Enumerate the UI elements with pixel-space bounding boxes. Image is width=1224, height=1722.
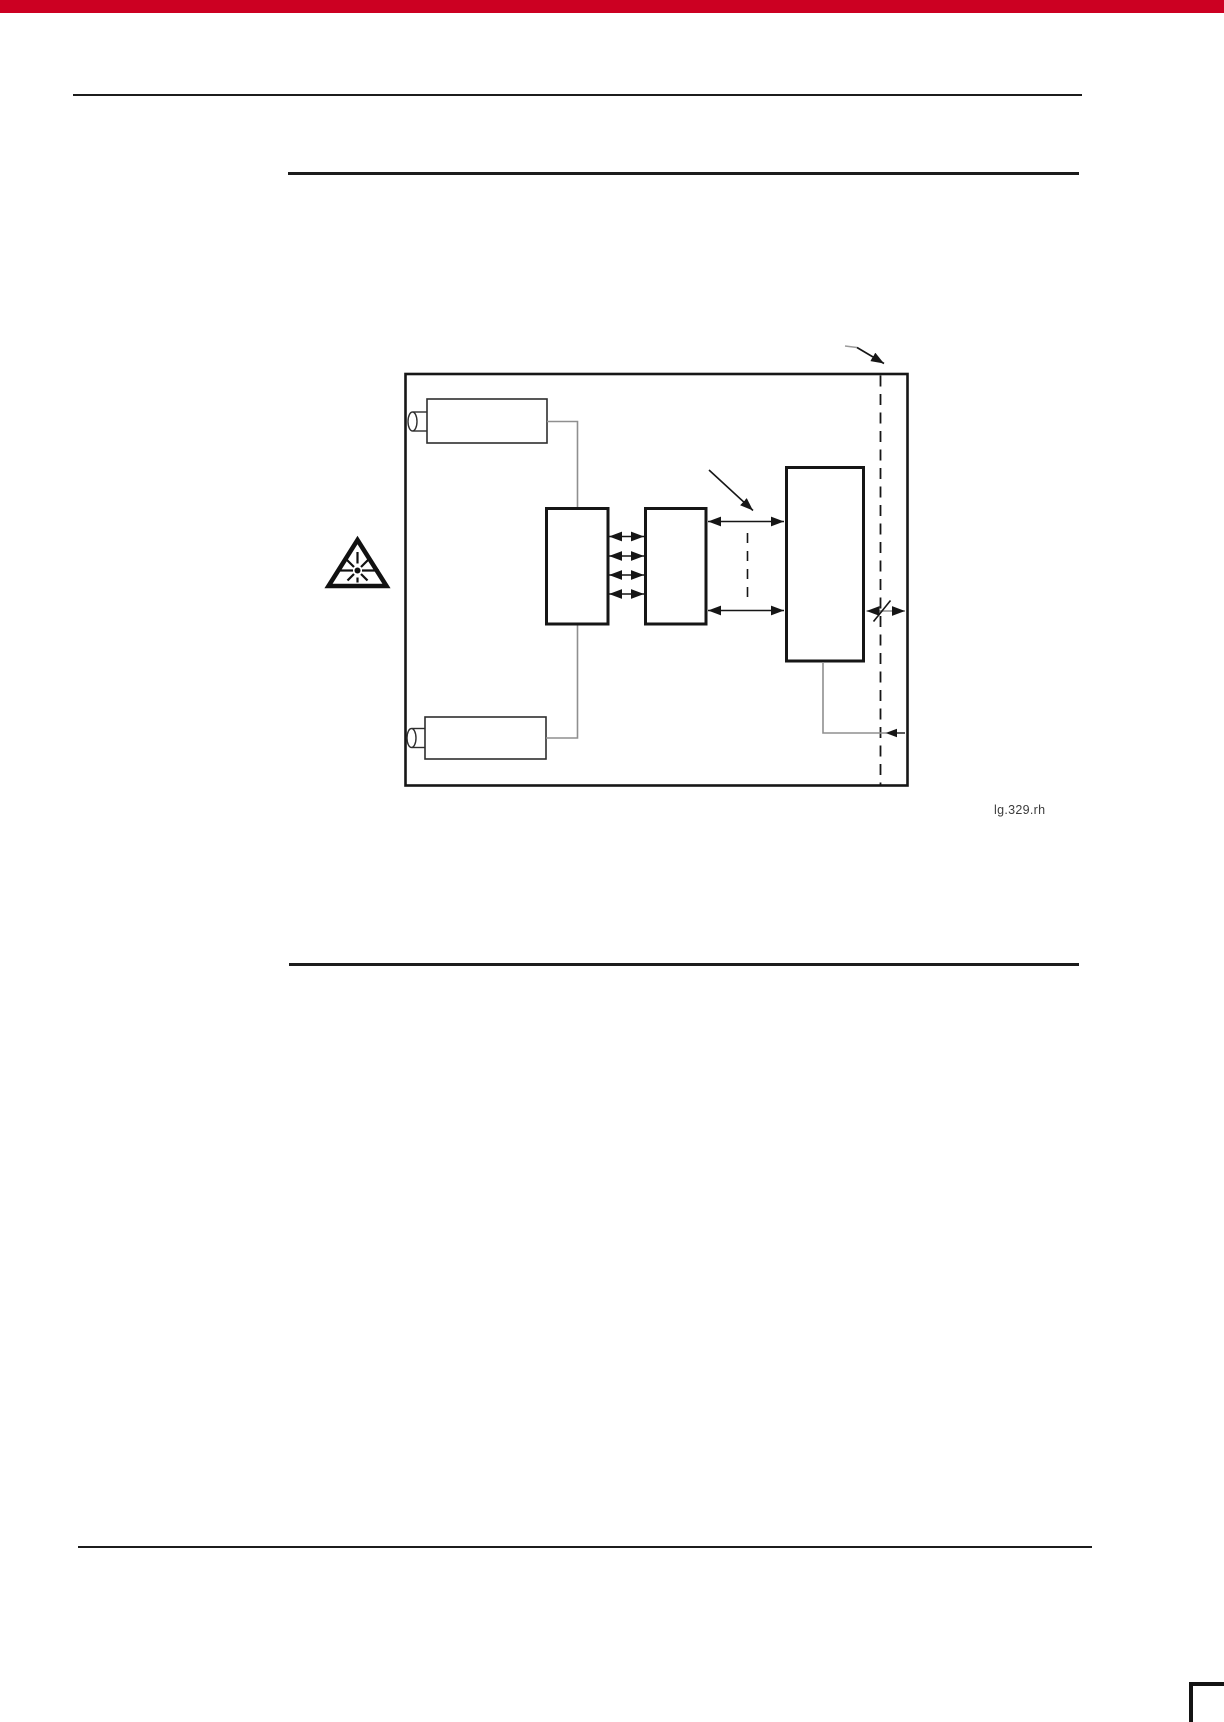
- cylinder-tab-icon: [407, 729, 416, 748]
- section-rule-lower: [289, 963, 1079, 966]
- bus-arrows-middle-right: [708, 522, 784, 611]
- laser-unit-bottom: [407, 717, 546, 759]
- footer-rule: [78, 1546, 1092, 1548]
- laser-radiation-warning-icon: [329, 540, 387, 586]
- connector-bottom-unit: [546, 624, 578, 738]
- page-number-box-corner: [1189, 1682, 1193, 1722]
- page-number-box-corner: [1189, 1682, 1224, 1686]
- interface-leader-arrow: [845, 346, 884, 364]
- laser-unit-top: [408, 399, 547, 443]
- block-middle: [646, 509, 707, 625]
- bus-arrow-right-boundary: [867, 601, 906, 622]
- block-right: [787, 468, 864, 662]
- block-left: [547, 509, 609, 625]
- link-leader-arrow: [709, 470, 753, 511]
- connector-top-unit: [547, 422, 578, 509]
- bus-arrows-left-middle: [609, 537, 644, 595]
- return-path-arrow: [823, 662, 905, 737]
- block-diagram: [0, 0, 1224, 900]
- figure-caption: lg.329.rh: [994, 803, 1045, 817]
- cylinder-tab-icon: [408, 412, 417, 431]
- document-page: lg.329.rh: [0, 0, 1224, 1722]
